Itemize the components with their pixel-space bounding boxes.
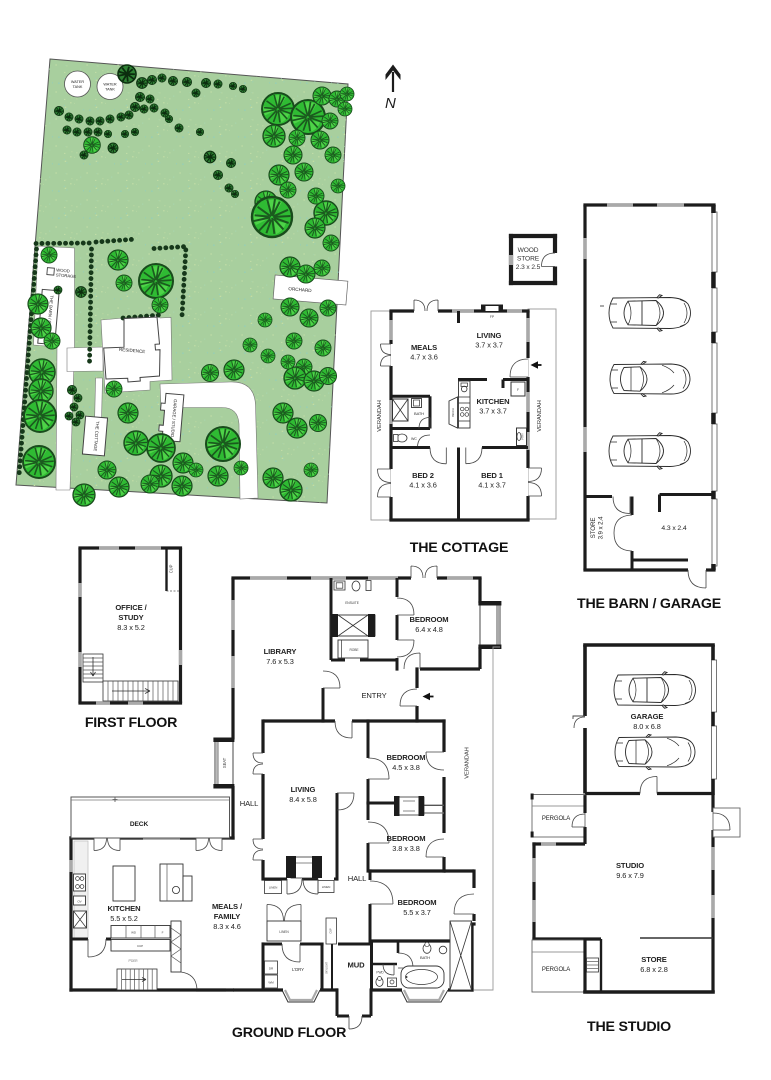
svg-text:CUP: CUP: [169, 564, 174, 573]
svg-text:STORE: STORE: [517, 256, 540, 263]
svg-text:5.5 x 3.7: 5.5 x 3.7: [403, 908, 430, 917]
svg-text:BENCH: BENCH: [451, 408, 455, 417]
svg-text:WATER: WATER: [71, 80, 85, 84]
svg-text:ENSUITE: ENSUITE: [345, 601, 359, 605]
svg-text:LIVING: LIVING: [477, 331, 502, 340]
svg-text:MEALS: MEALS: [411, 343, 437, 352]
svg-text:VERANDAH: VERANDAH: [377, 400, 383, 431]
svg-text:3.7 x 3.7: 3.7 x 3.7: [479, 407, 506, 416]
svg-text:MEALS /: MEALS /: [212, 902, 243, 911]
svg-text:FAMILY: FAMILY: [214, 912, 241, 921]
svg-text:L'DRY: L'DRY: [292, 967, 304, 972]
svg-text:BED 2: BED 2: [412, 471, 434, 480]
svg-text:BEDROOM: BEDROOM: [398, 898, 437, 907]
svg-text:THE BARN / GARAGE: THE BARN / GARAGE: [577, 596, 721, 612]
svg-text:LINEN: LINEN: [279, 930, 289, 934]
svg-text:WATER: WATER: [103, 83, 117, 87]
svg-text:PERGOLA: PERGOLA: [542, 816, 570, 822]
svg-text:ROBE: ROBE: [350, 648, 360, 652]
svg-text:THE COTTAGE: THE COTTAGE: [410, 540, 508, 556]
svg-text:4.1 x 3.7: 4.1 x 3.7: [478, 481, 505, 490]
svg-text:STUDY: STUDY: [118, 613, 143, 622]
svg-text:4.5 x 3.8: 4.5 x 3.8: [392, 763, 419, 772]
svg-text:GARAGE: GARAGE: [631, 712, 664, 721]
svg-text:2.3 x 2.5: 2.3 x 2.5: [516, 264, 541, 271]
svg-text:N: N: [385, 95, 396, 112]
svg-text:7.6 x 5.3: 7.6 x 5.3: [266, 657, 293, 666]
svg-text:ENTRY: ENTRY: [361, 691, 386, 700]
svg-text:4.1 x 3.6: 4.1 x 3.6: [409, 481, 436, 490]
svg-text:HALL: HALL: [240, 799, 259, 808]
svg-text:FIRST FLOOR: FIRST FLOOR: [85, 715, 177, 731]
svg-text:8.0 x 6.8: 8.0 x 6.8: [633, 722, 660, 731]
svg-text:GROUND FLOOR: GROUND FLOOR: [232, 1025, 346, 1041]
svg-text:DECK: DECK: [130, 821, 149, 828]
svg-text:CUP: CUP: [329, 928, 333, 934]
svg-text:THE STUDIO: THE STUDIO: [587, 1019, 671, 1035]
svg-text:TANK: TANK: [105, 88, 115, 92]
svg-text:P'DER: P'DER: [129, 959, 139, 963]
svg-text:OV: OV: [77, 900, 81, 904]
svg-text:SKYLIGHT: SKYLIGHT: [325, 961, 329, 974]
svg-text:5.5 x 5.2: 5.5 x 5.2: [110, 914, 137, 923]
svg-text:MUD: MUD: [348, 961, 366, 970]
svg-text:BATH: BATH: [420, 955, 430, 960]
svg-text:KITCHEN: KITCHEN: [476, 397, 509, 406]
svg-text:PWD: PWD: [376, 971, 384, 975]
svg-text:OFFICE /: OFFICE /: [115, 603, 147, 612]
svg-text:TANK: TANK: [73, 85, 83, 89]
svg-text:F: F: [517, 388, 519, 392]
svg-text:PTRY: PTRY: [521, 433, 525, 440]
svg-text:CUP: CUP: [137, 944, 143, 948]
svg-text:WC: WC: [411, 437, 417, 441]
svg-text:LINEN: LINEN: [269, 886, 278, 890]
svg-text:WM: WM: [268, 981, 274, 985]
svg-text:LIVING: LIVING: [291, 785, 316, 794]
svg-text:4.7 x 3.6: 4.7 x 3.6: [410, 353, 437, 362]
svg-text:BEDROOM: BEDROOM: [410, 615, 449, 624]
svg-text:3.7 x 3.7: 3.7 x 3.7: [475, 341, 502, 350]
svg-text:STORE: STORE: [641, 955, 667, 964]
svg-text:BEDROOM: BEDROOM: [387, 753, 426, 762]
svg-text:VERANDAH: VERANDAH: [465, 747, 471, 778]
svg-text:BEDROOM: BEDROOM: [387, 834, 426, 843]
svg-text:3.9 x 2.4: 3.9 x 2.4: [598, 516, 605, 539]
svg-text:STORE: STORE: [590, 518, 597, 539]
svg-text:6.8 x 2.8: 6.8 x 2.8: [640, 965, 667, 974]
svg-text:9.6 x 7.9: 9.6 x 7.9: [616, 871, 643, 880]
svg-text:8.3 x 5.2: 8.3 x 5.2: [117, 623, 144, 632]
svg-text:HALL: HALL: [348, 874, 367, 883]
svg-text:STUDIO: STUDIO: [616, 861, 644, 870]
svg-text:4.3 x 2.4: 4.3 x 2.4: [661, 525, 686, 532]
svg-text:F: F: [162, 931, 164, 935]
svg-text:BATH: BATH: [414, 411, 424, 416]
svg-text:8.4 x 5.8: 8.4 x 5.8: [289, 795, 316, 804]
svg-text:WOOD: WOOD: [518, 247, 539, 254]
svg-text:VERANDAH: VERANDAH: [537, 400, 543, 431]
svg-text:8.3 x 4.6: 8.3 x 4.6: [213, 922, 240, 931]
svg-text:PERGOLA: PERGOLA: [542, 967, 570, 973]
svg-text:3.8 x 3.8: 3.8 x 3.8: [392, 844, 419, 853]
svg-text:SEAT: SEAT: [222, 757, 227, 768]
svg-text:LIBRARY: LIBRARY: [264, 647, 297, 656]
svg-text:6.4 x 4.8: 6.4 x 4.8: [415, 625, 442, 634]
svg-text:LINEN: LINEN: [322, 885, 331, 889]
svg-text:BED 1: BED 1: [481, 471, 504, 480]
svg-text:KITCHEN: KITCHEN: [107, 904, 140, 913]
